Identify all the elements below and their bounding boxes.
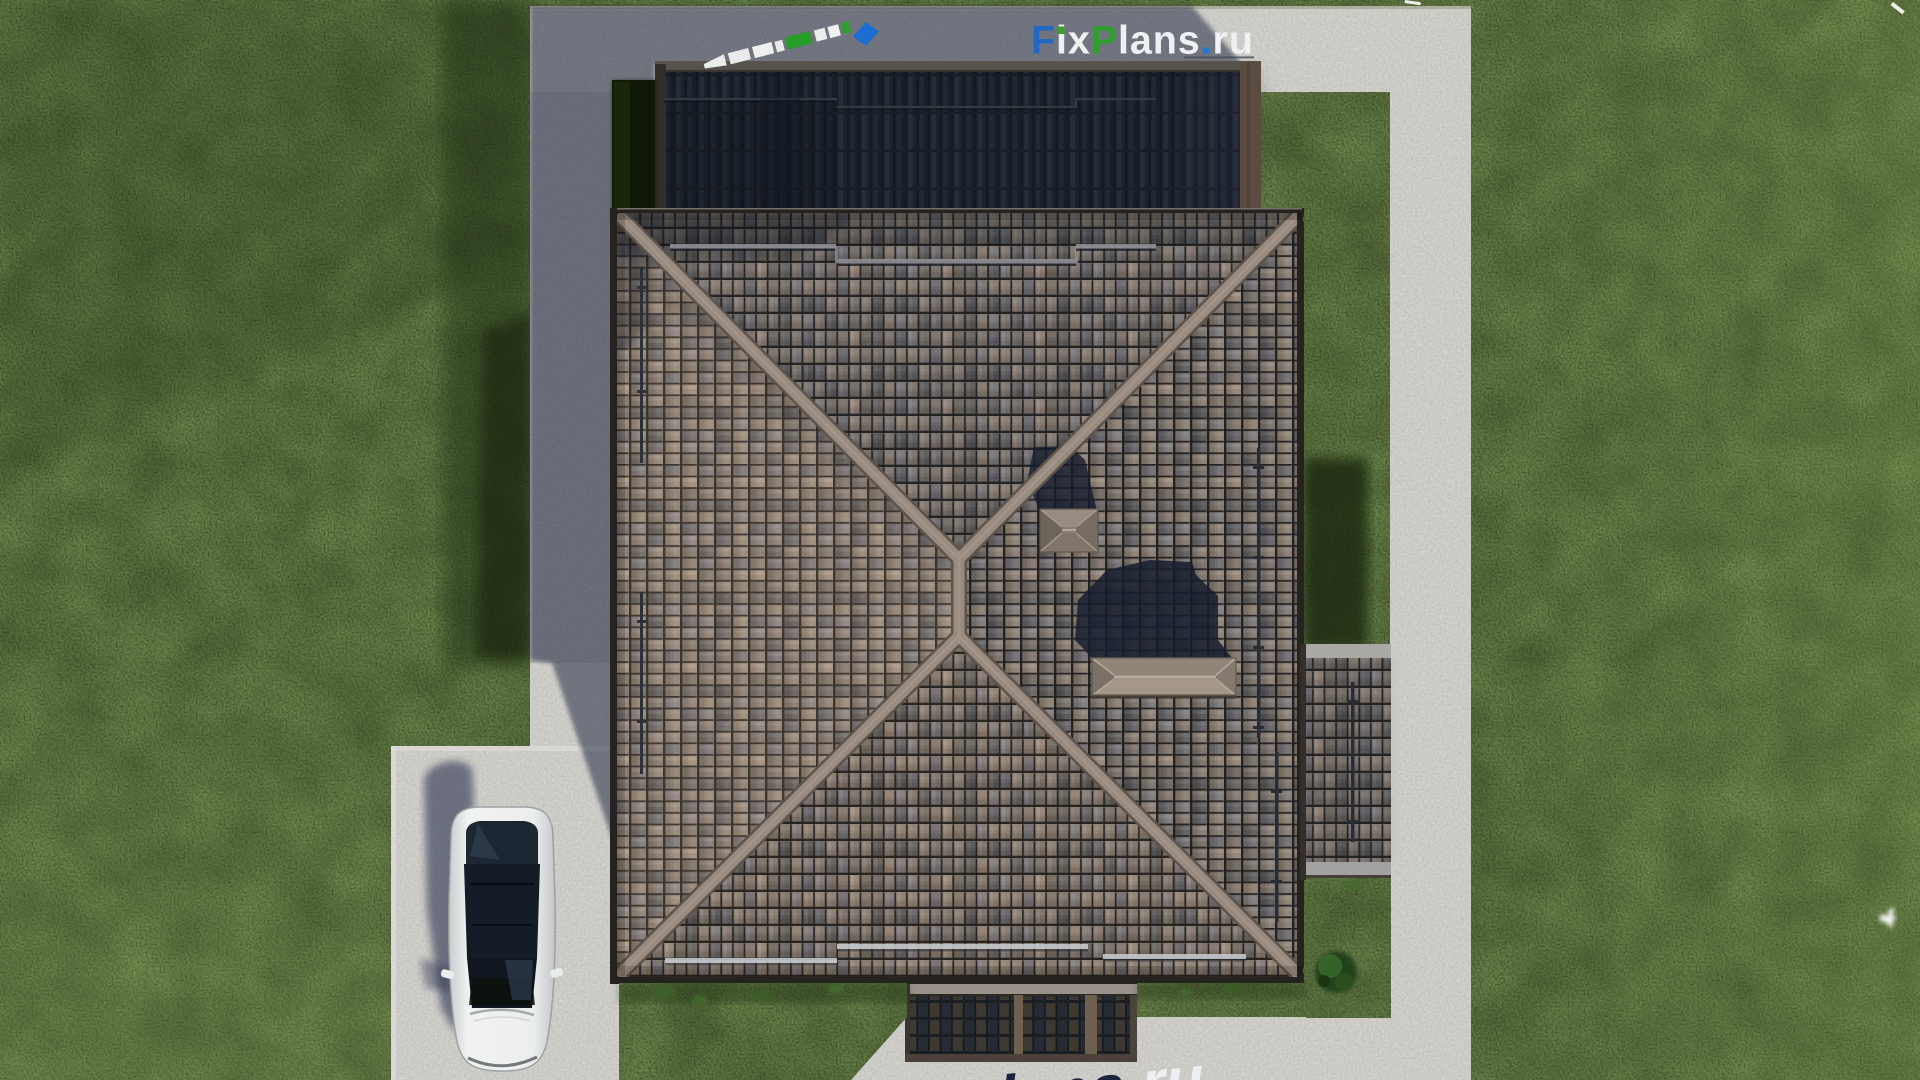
svg-text:FixPlans.ru: FixPlans.ru [1031, 19, 1254, 63]
